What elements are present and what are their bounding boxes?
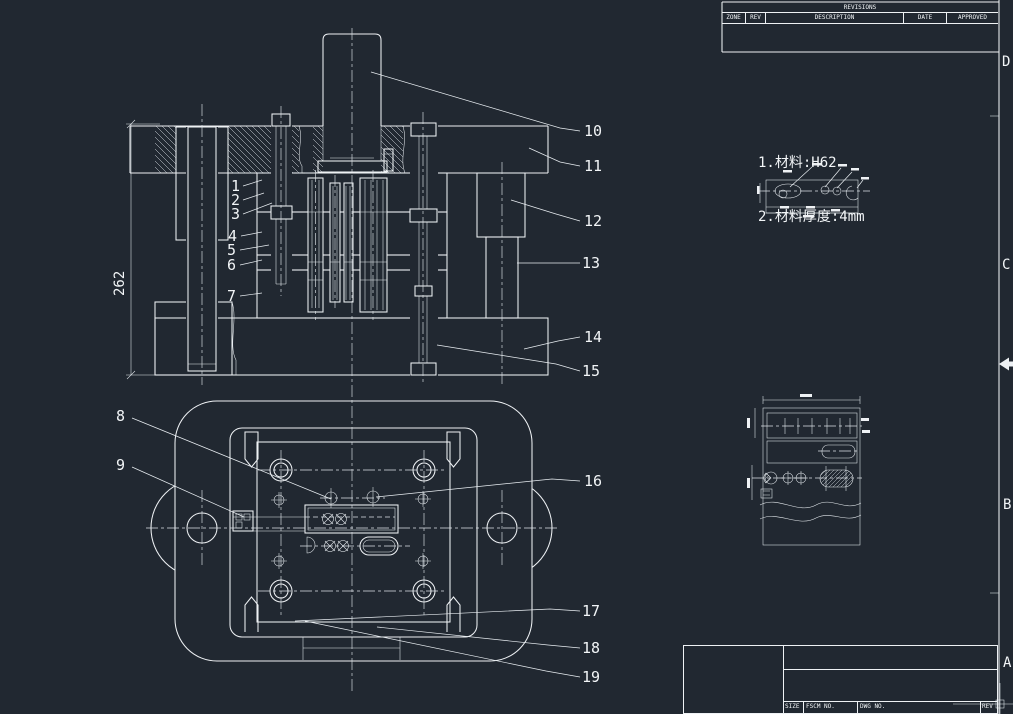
revisions-col-rev: REV: [746, 13, 766, 24]
part-label-17: 17: [582, 602, 600, 620]
part-label-9: 9: [116, 456, 125, 474]
part-label-15: 15: [582, 362, 600, 380]
revisions-col-zone: ZONE: [722, 13, 746, 24]
revisions-table: REVISIONS ZONE REV DESCRIPTION DATE APPR…: [722, 2, 998, 52]
title-block-fscm-cell: FSCM NO.: [803, 701, 858, 714]
revisions-col-description: DESCRIPTION: [766, 13, 904, 24]
part-label-16: 16: [584, 472, 602, 490]
zone-marker-b: B: [1003, 497, 1011, 513]
section-view: [130, 34, 548, 377]
zone-marker-c: C: [1002, 257, 1010, 273]
part-label-14: 14: [584, 328, 602, 346]
part-label-10: 10: [584, 122, 602, 140]
title-block-dwg-cell: DWG NO.: [857, 701, 981, 714]
part-label-6: 6: [227, 256, 236, 274]
plan-view: [151, 401, 552, 661]
zone-marker-a: A: [1003, 655, 1011, 671]
drawing-linework: 262 1 2 3 4 5 6 7 8 9 10 11 12 13: [0, 0, 1013, 714]
fscm-label: FSCM NO.: [806, 703, 835, 710]
material-note-1: 1.材料:H62: [758, 154, 865, 172]
title-block-size-cell: SIZE: [783, 701, 804, 714]
revisions-col-approved: APPROVED: [947, 13, 998, 24]
part-label-8: 8: [116, 407, 125, 425]
title-block-upper-cell: [783, 645, 998, 670]
part-label-18: 18: [582, 639, 600, 657]
title-block-left-cell: [683, 645, 784, 714]
revisions-title: REVISIONS: [722, 2, 998, 13]
rev-label: REV: [982, 703, 993, 710]
part-label-19: 19: [582, 668, 600, 686]
dimension-262-text: 262: [112, 271, 128, 296]
part-label-13: 13: [582, 254, 600, 272]
drawing-frame: [722, 0, 1013, 714]
part-label-3: 3: [231, 205, 240, 223]
revisions-col-date: DATE: [904, 13, 947, 24]
dwg-label: DWG NO.: [860, 703, 885, 710]
frame-center-arrow-icon: [999, 358, 1013, 371]
title-block-rev-cell: REV: [980, 701, 998, 714]
material-notes: 1.材料:H62 2.材料厚度:4mm: [758, 118, 865, 244]
part-label-11: 11: [584, 157, 602, 175]
strip-layout-sketch: [747, 394, 870, 545]
part-label-12: 12: [584, 212, 602, 230]
material-note-2: 2.材料厚度:4mm: [758, 208, 865, 226]
size-label: SIZE: [785, 703, 799, 710]
part-label-7: 7: [227, 287, 236, 305]
dimension-262: 262: [112, 120, 160, 379]
cad-drawing-canvas: 262 1 2 3 4 5 6 7 8 9 10 11 12 13: [0, 0, 1013, 714]
title-block-middle-cell: [783, 669, 998, 702]
zone-marker-d: D: [1002, 54, 1010, 70]
